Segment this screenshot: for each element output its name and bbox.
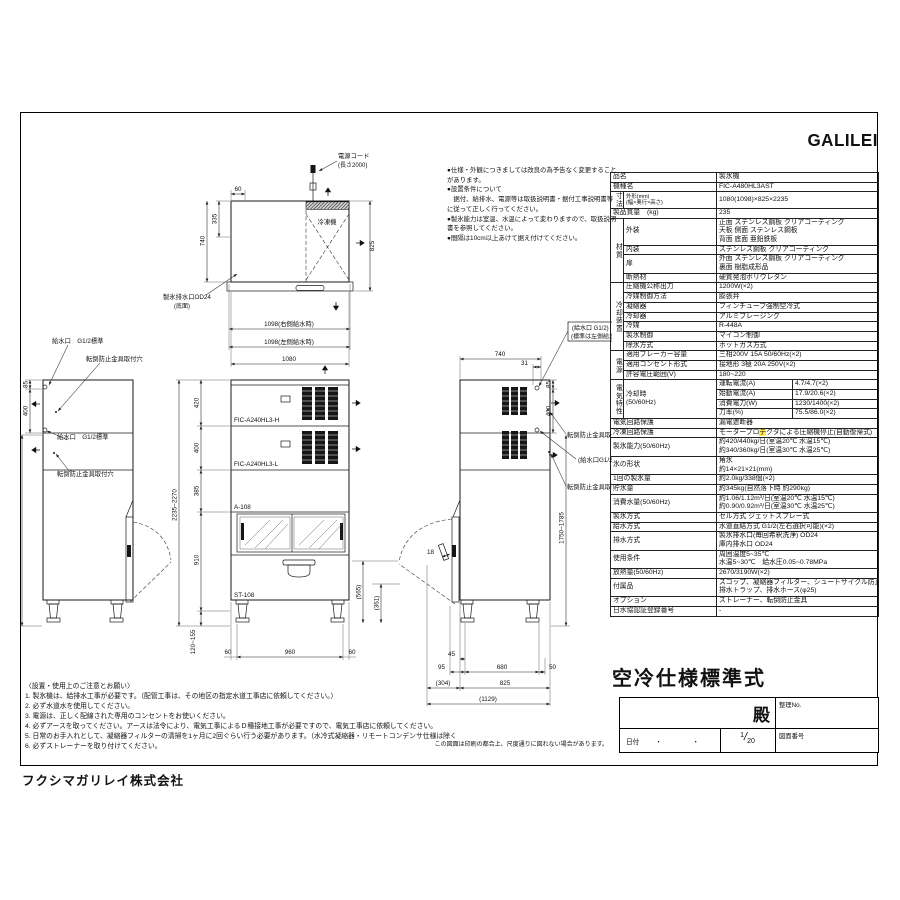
spec-cell: 機種名 bbox=[611, 182, 717, 192]
drain-label: 製氷排水口OD24 bbox=[163, 292, 211, 301]
spec-cell: 角氷約14×21×21(mm) bbox=[717, 456, 879, 474]
spec-cell: ホットガス方式 bbox=[717, 341, 879, 351]
spec-cell: 材質 bbox=[611, 218, 624, 283]
spec-cell: 電気回路保護 bbox=[611, 419, 717, 429]
spec-cell: 付属品 bbox=[611, 578, 717, 596]
anti-tip-hole-label: 転倒防止金具取付穴 bbox=[86, 354, 143, 363]
spec-cell: 電源 bbox=[611, 351, 624, 380]
water-inlet-note: (標準は左側給水) bbox=[571, 333, 612, 341]
spec-row: 冷却装置圧縮機公称出力1200W(×2) bbox=[611, 283, 879, 293]
spec-cell: 正面 ステンレス鋼板 クリアコーティング天板 側面 ステンレス鋼板背面 底面 亜… bbox=[717, 218, 879, 245]
spec-cell: ストレーナー、転倒防止金具 bbox=[717, 597, 879, 607]
spec-cell: オプション bbox=[611, 597, 717, 607]
svg-text:400: 400 bbox=[194, 442, 201, 453]
spec-cell: R-448A bbox=[717, 322, 879, 332]
spec-cell: 凝縮器 bbox=[624, 302, 717, 312]
scale-denominator: 20 bbox=[747, 738, 755, 745]
spec-cell: 三相200V 15A 50/60Hz(×2) bbox=[717, 351, 879, 361]
spec-cell: 消費水量(50/60Hz) bbox=[611, 494, 717, 512]
spec-row: 製品質量 (kg)235 bbox=[611, 208, 879, 218]
title-block: 殿 整理No. 日付・ ・ 1/20 図面番号 bbox=[619, 697, 879, 753]
spec-row: 1回の製氷量約2.0kg/338個(×2) bbox=[611, 475, 879, 485]
spec-row: 寸法外形(mm)(幅×奥行×高さ)1080(1098)×825×2235 bbox=[611, 192, 879, 209]
spec-cell: 貯氷量 bbox=[611, 484, 717, 494]
spec-cell: 始動電流(A) bbox=[717, 390, 793, 400]
spec-row: 材質外装正面 ステンレス鋼板 クリアコーティング天板 側面 ステンレス鋼板背面 … bbox=[611, 218, 879, 245]
svg-text:740: 740 bbox=[200, 235, 207, 246]
spec-cell: 内装 bbox=[624, 245, 717, 255]
plan-dimensions: 60 335 740 825 1098(右側給水時) 1098(左側給水時) 1… bbox=[200, 186, 377, 367]
spec-cell: 力率(%) bbox=[717, 409, 793, 419]
divider bbox=[775, 729, 776, 752]
spec-cell: 外形(mm)(幅×奥行×高さ) bbox=[624, 192, 717, 209]
spec-cell: セル方式 ジェットスプレー式 bbox=[717, 512, 879, 522]
svg-text:18: 18 bbox=[427, 549, 435, 556]
svg-text:85: 85 bbox=[546, 381, 553, 389]
spec-row: 品名製氷機 bbox=[611, 173, 879, 183]
spec-cell: 1回の製氷量 bbox=[611, 475, 717, 485]
front-dimensions: 420 400 385 910 120~155 2235~2270 60 960… bbox=[172, 380, 401, 660]
power-cord-length: (長さ2000) bbox=[338, 162, 367, 169]
spec-row: 電源適用ブレーカー容量三相200V 15A 50/60Hz(×2) bbox=[611, 351, 879, 361]
spec-cell: 製氷能力(50/60Hz) bbox=[611, 438, 717, 456]
spec-row: 冷凍回路保護モータープロテクタによる圧縮機停止(自動復帰式) bbox=[611, 428, 879, 438]
spec-row: 冷媒制御方法膨張弁 bbox=[611, 293, 879, 303]
spec-cell: 約345kg(自然落下時 約290kg) bbox=[717, 484, 879, 494]
spec-cell: 1200W(×2) bbox=[717, 283, 879, 293]
spec-cell: 膨張弁 bbox=[717, 293, 879, 303]
svg-text:60: 60 bbox=[234, 186, 242, 193]
svg-text:740: 740 bbox=[495, 351, 506, 358]
spec-cell: 冷却時(50/60Hz) bbox=[624, 380, 717, 419]
spec-cell: 17.9/20.6(×2) bbox=[793, 390, 879, 400]
galilei-logo: GALILEI bbox=[786, 131, 878, 152]
spec-cell: 約420/440kg/日(室温20℃ 水温15℃)約340/360kg/日(室温… bbox=[717, 438, 879, 456]
anti-tip-hole-label: 転倒防止金具取付穴 bbox=[567, 482, 612, 491]
model-label: A-108 bbox=[234, 504, 251, 511]
right-side-view: (給水口 G1/2) (標準は左側給水) 転倒防止金具取付穴 (給水口G1/2)… bbox=[399, 322, 612, 706]
airflow-icon bbox=[323, 366, 328, 374]
spec-cell: 漏電遮断器 bbox=[717, 419, 879, 429]
anti-tip-hole-label: 転倒防止金具取付穴 bbox=[57, 469, 114, 478]
svg-text:400: 400 bbox=[23, 405, 30, 416]
note-line: 2. 必ず水道水を使用してください。 bbox=[25, 702, 600, 712]
water-inlet-label: 給水口 G1/2標準 bbox=[52, 336, 103, 345]
note-line: 6. 必ずストレーナーを取り付けてください。 bbox=[25, 742, 600, 752]
airflow-icon bbox=[352, 401, 360, 406]
spec-row: 貯氷量約345kg(自然落下時 約290kg) bbox=[611, 484, 879, 494]
spec-cell: 製品質量 (kg) bbox=[611, 208, 717, 218]
spec-cell: 適用ブレーカー容量 bbox=[624, 351, 717, 361]
spec-cell: ステンレス鋼板 クリアコーティング bbox=[717, 245, 879, 255]
spec-cell: 圧縮機公称出力 bbox=[624, 283, 717, 293]
spec-cell: フィンチューブ強制空冷式 bbox=[717, 302, 879, 312]
airflow-icon bbox=[32, 448, 40, 453]
svg-text:385: 385 bbox=[194, 485, 201, 496]
water-inlet-label: (給水口G1/2) bbox=[578, 455, 612, 464]
spec-row: 消費水量(50/60Hz)約1.06/1.12m³/日(室温20℃ 水温15℃)… bbox=[611, 494, 879, 512]
spec-cell: 製氷排水口(毎回希釈洗浄) OD24庫内排水口 OD24 bbox=[717, 532, 879, 550]
spec-row: 許容電圧範囲(V)180~220 bbox=[611, 370, 879, 380]
scoop-pocket-handle bbox=[283, 560, 315, 577]
spec-cell: 4.7/4.7(×2) bbox=[793, 380, 879, 390]
left-side-view: 給水口 G1/2標準 転倒防止金具取付穴 給水口 G1/2標準 転倒防止金具取付… bbox=[20, 336, 171, 626]
legs bbox=[461, 600, 539, 622]
spec-cell: 運転電流(A) bbox=[717, 380, 793, 390]
svg-text:45: 45 bbox=[448, 651, 456, 658]
svg-text:1098(左側給水時): 1098(左側給水時) bbox=[264, 337, 314, 346]
svg-text:60: 60 bbox=[224, 649, 232, 656]
scale-fraction: 1/20 bbox=[720, 731, 775, 743]
notes-title: 〈設置・使用上のご注意とお願い〉 bbox=[25, 682, 600, 692]
spec-row: 扉外面 ステンレス鋼板 クリアコーティング裏面 樹脂成形品 bbox=[611, 255, 879, 273]
airflow-icon bbox=[356, 241, 364, 246]
spec-cell: 235 bbox=[717, 208, 879, 218]
svg-text:50: 50 bbox=[549, 664, 557, 671]
svg-text:335: 335 bbox=[212, 213, 219, 224]
water-inlet-label: (給水口 G1/2) bbox=[572, 324, 609, 332]
svg-text:420: 420 bbox=[194, 397, 201, 408]
spec-cell: 冷却器 bbox=[624, 312, 717, 322]
svg-text:825: 825 bbox=[369, 240, 376, 251]
refrigerator-label: 冷凍機 bbox=[318, 217, 338, 226]
svg-text:680: 680 bbox=[497, 664, 508, 671]
svg-text:60: 60 bbox=[348, 649, 356, 656]
spec-row: 断熱材硬質発泡ポリウレタン bbox=[611, 273, 879, 283]
note-line: 1. 製氷機は、給排水工事が必要です。（配管工事は、その地区の指定水道工事店に依… bbox=[25, 692, 600, 702]
spec-row: 適用コンセント形式接地形 3極 20A 250V(×2) bbox=[611, 360, 879, 370]
sliding-glass-doors bbox=[237, 514, 345, 552]
model-label: ST-108 bbox=[234, 592, 255, 599]
svg-text:960: 960 bbox=[285, 649, 296, 656]
spec-row: 電気回路保護漏電遮断器 bbox=[611, 419, 879, 429]
drain-sublabel: (底面) bbox=[174, 302, 190, 310]
spec-cell: 消費電力(W) bbox=[717, 399, 793, 409]
condenser-grille bbox=[281, 431, 338, 464]
spec-cell: 許容電圧範囲(V) bbox=[624, 370, 717, 380]
model-label: FIC-A240HL3-L bbox=[234, 461, 279, 468]
left-view-dimensions: 85 400 1750~1785 bbox=[20, 380, 42, 626]
title-block-row2: 日付・ ・ 1/20 図面番号 bbox=[620, 729, 878, 752]
spec-table: 品名製氷機機種名FIC-A480HL3AST寸法外形(mm)(幅×奥行×高さ)1… bbox=[610, 172, 878, 617]
date-label: 日付 bbox=[626, 739, 639, 746]
addressee-dono: 殿 bbox=[620, 701, 770, 726]
condenser-grille bbox=[281, 387, 338, 420]
spec-cell: モータープロテクタによる圧縮機停止(自動復帰式) bbox=[717, 428, 879, 438]
spec-cell: 外面 ステンレス鋼板 クリアコーティング裏面 樹脂成形品 bbox=[717, 255, 879, 273]
spec-cell: 排水方式 bbox=[611, 532, 717, 550]
spec-row: 日水協認証登録番号- bbox=[611, 606, 879, 616]
svg-text:85: 85 bbox=[23, 381, 30, 389]
svg-text:1098(右側給水時): 1098(右側給水時) bbox=[264, 319, 314, 328]
spec-cell: - bbox=[717, 606, 879, 616]
spec-cell: 冷媒 bbox=[624, 322, 717, 332]
spec-cell: アルミブレージング bbox=[717, 312, 879, 322]
svg-text:910: 910 bbox=[194, 554, 201, 565]
drawing-sheet: GALILEI ●仕様・外観につきましては改良の為予告なく変更することがあります… bbox=[0, 0, 900, 900]
spec-cell: 硬質発泡ポリウレタン bbox=[717, 273, 879, 283]
spec-cell: マイコン制御 bbox=[717, 331, 879, 341]
scale-numerator: 1 bbox=[740, 732, 744, 739]
spec-cell: 1080(1098)×825×2235 bbox=[717, 192, 879, 209]
svg-text:(361): (361) bbox=[374, 596, 381, 611]
divider bbox=[775, 698, 776, 728]
svg-text:1750~1785: 1750~1785 bbox=[20, 512, 22, 544]
spec-cell: 180~220 bbox=[717, 370, 879, 380]
spec-cell: 75.5/86.0(×2) bbox=[793, 409, 879, 419]
spec-cell: 約2.0kg/338個(×2) bbox=[717, 475, 879, 485]
svg-text:31: 31 bbox=[521, 360, 529, 367]
airflow-icon bbox=[334, 302, 339, 310]
svg-text:120~155: 120~155 bbox=[190, 629, 197, 654]
spec-cell: 冷媒制御方法 bbox=[624, 293, 717, 303]
anti-tip-hole-label: 転倒防止金具取付穴 bbox=[567, 430, 612, 439]
spec-row: 機種名FIC-A480HL3AST bbox=[611, 182, 879, 192]
airflow-icon bbox=[551, 401, 559, 406]
spec-cell: スコップ、凝縮器フィルター、シュートサイクル防止板排水トラップ、排水ホース(φ2… bbox=[717, 578, 879, 596]
spec-row: 付属品スコップ、凝縮器フィルター、シュートサイクル防止板排水トラップ、排水ホース… bbox=[611, 578, 879, 596]
spec-cell: 製氷制御 bbox=[624, 331, 717, 341]
spec-type-title: 空冷仕様標準式 bbox=[612, 662, 766, 691]
svg-text:1750~1785: 1750~1785 bbox=[559, 512, 566, 544]
spec-cell: 給水方式 bbox=[611, 522, 717, 532]
spec-row: 製氷方式セル方式 ジェットスプレー式 bbox=[611, 512, 879, 522]
svg-text:2235~2270: 2235~2270 bbox=[172, 489, 179, 521]
installation-notes: 〈設置・使用上のご注意とお願い〉 1. 製氷機は、給排水工事が必要です。（配管工… bbox=[25, 682, 600, 751]
reference-no-label: 整理No. bbox=[779, 700, 801, 709]
right-view-dimensions: 740 31 85 400 1750~1785 18 bbox=[427, 351, 570, 706]
title-block-row1: 殿 整理No. bbox=[620, 698, 878, 729]
spec-cell: 外装 bbox=[624, 218, 717, 245]
spec-cell: 放熱量(50/60Hz) bbox=[611, 569, 717, 579]
spec-row: 給水方式水道直結方式 G1/2(左右選択可能)(×2) bbox=[611, 522, 879, 532]
spec-row: 電気特性冷却時(50/60Hz)運転電流(A)4.7/4.7(×2) bbox=[611, 380, 879, 390]
side-grille bbox=[502, 387, 527, 415]
svg-text:1080: 1080 bbox=[282, 356, 297, 363]
spec-cell: 製氷機 bbox=[717, 173, 879, 183]
spec-cell: 冷凍回路保護 bbox=[611, 428, 717, 438]
spec-row: 製氷制御マイコン制御 bbox=[611, 331, 879, 341]
airflow-icon bbox=[32, 402, 40, 407]
company-name: フクシマガリレイ株式会社 bbox=[22, 770, 184, 789]
spec-cell: 品名 bbox=[611, 173, 717, 183]
front-view: FIC-A240HL3-H FIC-A240HL3-L A-108 ST-108 bbox=[172, 366, 401, 660]
svg-text:95: 95 bbox=[438, 664, 446, 671]
spec-cell: 使用条件 bbox=[611, 550, 717, 568]
spec-row: 冷媒R-448A bbox=[611, 322, 879, 332]
spec-cell: 日水協認証登録番号 bbox=[611, 606, 717, 616]
spec-row: オプションストレーナー、転倒防止金具 bbox=[611, 597, 879, 607]
spec-cell: 電気特性 bbox=[611, 380, 624, 419]
spec-cell: 扉 bbox=[624, 255, 717, 273]
spec-cell: 製氷方式 bbox=[611, 512, 717, 522]
airflow-icon bbox=[352, 447, 360, 452]
spec-cell: FIC-A480HL3AST bbox=[717, 182, 879, 192]
spec-row: 排水方式製氷排水口(毎回希釈洗浄) OD24庫内排水口 OD24 bbox=[611, 532, 879, 550]
spec-row: 氷の形状角氷約14×21×21(mm) bbox=[611, 456, 879, 474]
legs bbox=[236, 600, 344, 622]
note-line: 3. 電源は、正しく配線された専用のコンセントをお使いください。 bbox=[25, 712, 600, 722]
water-inlet-label: 給水口 G1/2標準 bbox=[57, 432, 108, 441]
model-label: FIC-A240HL3-H bbox=[234, 417, 280, 424]
note-line: 4. 必ずアースを取ってください。アースは法令により、電気工事によるＤ種接地工事… bbox=[25, 722, 600, 732]
spec-cell: 2670/3190W(×2) bbox=[717, 569, 879, 579]
orthographic-drawing: 冷凍機 電源コード (長さ2000) 製氷排水口OD24 (底面) 60 335 bbox=[20, 112, 612, 770]
spec-cell: 氷の形状 bbox=[611, 456, 717, 474]
side-grille bbox=[502, 431, 527, 459]
spec-cell: 約1.06/1.12m³/日(室温20℃ 水温15℃)約0.90/0.92m³/… bbox=[717, 494, 879, 512]
spec-cell: 断熱材 bbox=[624, 273, 717, 283]
svg-text:400: 400 bbox=[546, 405, 553, 416]
spec-cell: 周囲温度5~35℃水温5~30℃ 給水圧0.05~0.78MPa bbox=[717, 550, 879, 568]
spec-row: 冷却器アルミブレージング bbox=[611, 312, 879, 322]
spec-cell: 1230/1400(×2) bbox=[793, 399, 879, 409]
spec-row: 使用条件周囲温度5~35℃水温5~30℃ 給水圧0.05~0.78MPa bbox=[611, 550, 879, 568]
spec-cell: 水道直結方式 G1/2(左右選択可能)(×2) bbox=[717, 522, 879, 532]
spec-row: 除氷方式ホットガス方式 bbox=[611, 341, 879, 351]
spec-row: 放熱量(50/60Hz)2670/3190W(×2) bbox=[611, 569, 879, 579]
spec-cell: 冷却装置 bbox=[611, 283, 624, 351]
power-cord bbox=[310, 165, 316, 201]
svg-text:(565): (565) bbox=[356, 585, 363, 600]
note-line: 5. 日常のお手入れとして、凝縮器フィルターの清掃を1ヶ月に2回ぐらい行う必要が… bbox=[25, 732, 600, 742]
drawing-no-label: 図面番号 bbox=[779, 731, 804, 740]
spec-row: 製氷能力(50/60Hz)約420/440kg/日(室温20℃ 水温15℃)約3… bbox=[611, 438, 879, 456]
spec-cell: 除氷方式 bbox=[624, 341, 717, 351]
plan-view: 冷凍機 電源コード (長さ2000) 製氷排水口OD24 (底面) 60 335 bbox=[163, 151, 376, 367]
spec-row: 内装ステンレス鋼板 クリアコーティング bbox=[611, 245, 879, 255]
airflow-icon bbox=[326, 188, 331, 196]
date-dots: ・ ・ bbox=[655, 739, 711, 746]
spec-cell: 適用コンセント形式 bbox=[624, 360, 717, 370]
spec-cell: 寸法 bbox=[611, 192, 624, 209]
spec-cell: 接地形 3極 20A 250V(×2) bbox=[717, 360, 879, 370]
legs bbox=[47, 600, 123, 622]
spec-row: 凝縮器フィンチューブ強制空冷式 bbox=[611, 302, 879, 312]
power-cord-label: 電源コード bbox=[338, 151, 369, 160]
date-field: 日付・ ・ bbox=[626, 736, 711, 746]
